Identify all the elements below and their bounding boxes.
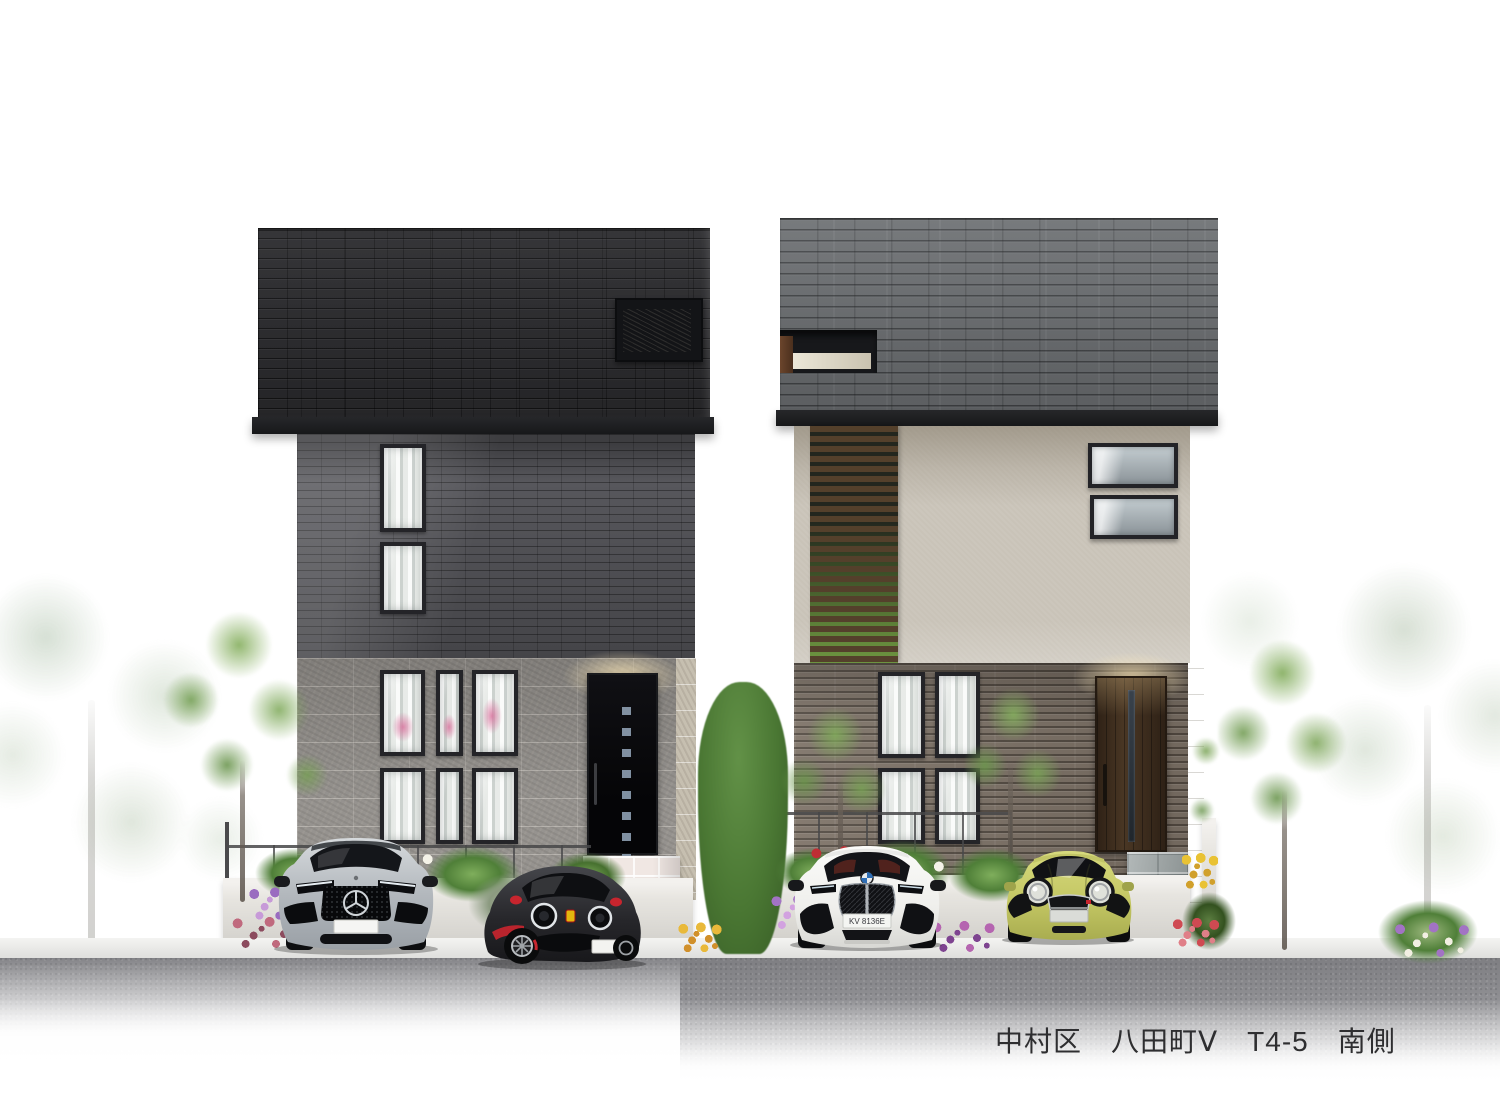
left-1f-window-r1c2	[436, 670, 463, 756]
faded-tree-trunk-left	[88, 700, 95, 958]
left-house-roof-recessed-window	[615, 298, 703, 362]
right-house-roof-slit-opening	[780, 330, 877, 373]
location-caption: 中村区 八田町Ⅴ T4-5 南側	[995, 1020, 1396, 1060]
left-1f-window-r1c1	[380, 670, 425, 756]
right-door-handle	[1103, 764, 1107, 806]
right-2f-window-top	[1088, 443, 1178, 488]
left-door-handle	[594, 763, 597, 805]
left-2f-window-top	[380, 444, 426, 532]
right-trim-vine	[1186, 700, 1226, 870]
car-mercedes-suv	[270, 820, 442, 956]
left-2f-window-bottom	[380, 542, 426, 614]
car-bmw-suv: KV 8136E	[786, 828, 948, 952]
left-house-upper-wall	[297, 434, 695, 660]
flower-cluster-far-right	[1390, 916, 1474, 960]
left-door-glass-squares	[622, 707, 631, 859]
left-1f-window-r1c3	[472, 670, 518, 756]
left-front-tree-trunk	[240, 760, 245, 902]
left-front-tree-foliage	[155, 585, 355, 835]
right-door-glass-strip	[1128, 690, 1135, 842]
flower-cluster-yellow-steps	[1182, 846, 1218, 892]
architectural-rendering: KV 8136E 中村区 八田町Ⅴ T4-5 南側	[0, 0, 1500, 1096]
bmw-license-plate-text: KV 8136E	[849, 917, 885, 926]
left-1f-window-r2c3	[472, 768, 518, 844]
right-house-eave	[776, 410, 1218, 426]
right-side-tree	[1218, 618, 1358, 868]
right-2f-window-bottom	[1090, 495, 1178, 539]
roof-opening-wood-jamb	[780, 336, 793, 373]
flower-cluster-red-steps	[1172, 914, 1220, 948]
right-house-front-door	[1095, 676, 1167, 852]
roof-opening-floor	[792, 353, 871, 369]
right-house-roof-volume	[780, 218, 1218, 411]
flower-cluster-yellow-porch	[678, 918, 722, 954]
car-mini-hatch	[998, 834, 1140, 946]
car-abarth-hatch	[474, 852, 654, 972]
right-house-wood-slat-screen	[810, 426, 898, 663]
left-house-eave	[252, 417, 714, 434]
right-side-tree-trunk	[1282, 790, 1287, 950]
